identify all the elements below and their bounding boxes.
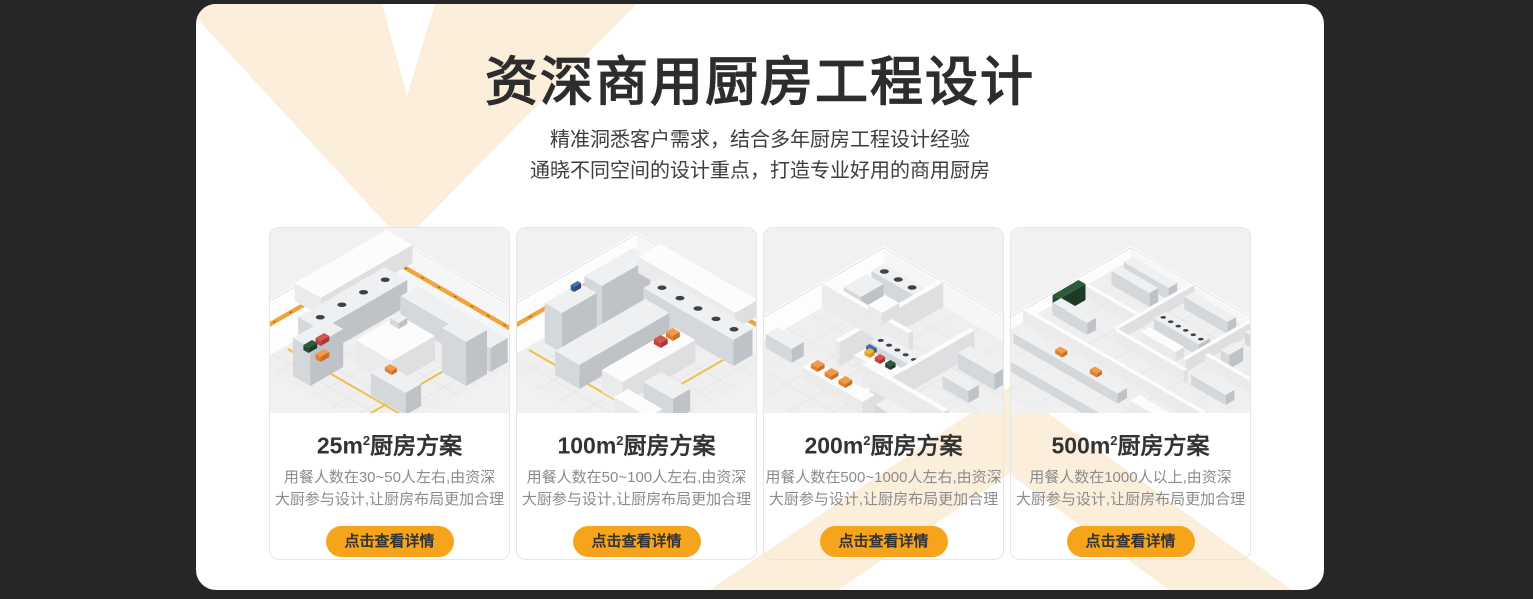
card-description: 用餐人数在500~1000人左右,由资深 大厨参与设计,让厨房布局更加合理 bbox=[764, 467, 1003, 511]
superscript-2: 2 bbox=[616, 433, 623, 448]
view-details-button[interactable]: 点击查看详情 bbox=[326, 526, 454, 557]
superscript-2: 2 bbox=[1110, 433, 1117, 448]
card-title: 100m2厨房方案 bbox=[517, 426, 756, 461]
page-title: 资深商用厨房工程设计 bbox=[196, 52, 1324, 113]
card-description: 用餐人数在1000人以上,由资深 大厨参与设计,让厨房布局更加合理 bbox=[1011, 467, 1250, 511]
subtitle-line-2: 通晓不同空间的设计重点，打造专业好用的商用厨房 bbox=[530, 160, 990, 182]
content-panel: 资深商用厨房工程设计 精准洞悉客户需求，结合多年厨房工程设计经验 通晓不同空间的… bbox=[196, 4, 1324, 590]
card-description: 用餐人数在30~50人左右,由资深 大厨参与设计,让厨房布局更加合理 bbox=[270, 467, 509, 511]
kitchen-plan-card-200m: 200m2厨房方案 用餐人数在500~1000人左右,由资深 大厨参与设计,让厨… bbox=[763, 227, 1004, 560]
card-title: 200m2厨房方案 bbox=[764, 426, 1003, 461]
kitchen-plan-cards: 25m2厨房方案 用餐人数在30~50人左右,由资深 大厨参与设计,让厨房布局更… bbox=[196, 227, 1324, 560]
card-title: 25m2厨房方案 bbox=[270, 426, 509, 461]
superscript-2: 2 bbox=[863, 433, 870, 448]
view-details-button[interactable]: 点击查看详情 bbox=[573, 526, 701, 557]
view-details-button[interactable]: 点击查看详情 bbox=[820, 526, 948, 557]
kitchen-plan-card-100m: 100m2厨房方案 用餐人数在50~100人左右,由资深 大厨参与设计,让厨房布… bbox=[516, 227, 757, 560]
kitchen-plan-card-25m: 25m2厨房方案 用餐人数在30~50人左右,由资深 大厨参与设计,让厨房布局更… bbox=[269, 227, 510, 560]
kitchen-render-25m bbox=[270, 228, 509, 413]
card-description: 用餐人数在50~100人左右,由资深 大厨参与设计,让厨房布局更加合理 bbox=[517, 467, 756, 511]
card-title: 500m2厨房方案 bbox=[1011, 426, 1250, 461]
kitchen-render-200m bbox=[764, 228, 1003, 413]
kitchen-render-500m bbox=[1011, 228, 1250, 413]
kitchen-render-100m bbox=[517, 228, 756, 413]
page-subtitle: 精准洞悉客户需求，结合多年厨房工程设计经验 通晓不同空间的设计重点，打造专业好用… bbox=[196, 125, 1324, 187]
kitchen-plan-card-500m: 500m2厨房方案 用餐人数在1000人以上,由资深 大厨参与设计,让厨房布局更… bbox=[1010, 227, 1251, 560]
view-details-button[interactable]: 点击查看详情 bbox=[1067, 526, 1195, 557]
subtitle-line-1: 精准洞悉客户需求，结合多年厨房工程设计经验 bbox=[550, 129, 970, 151]
